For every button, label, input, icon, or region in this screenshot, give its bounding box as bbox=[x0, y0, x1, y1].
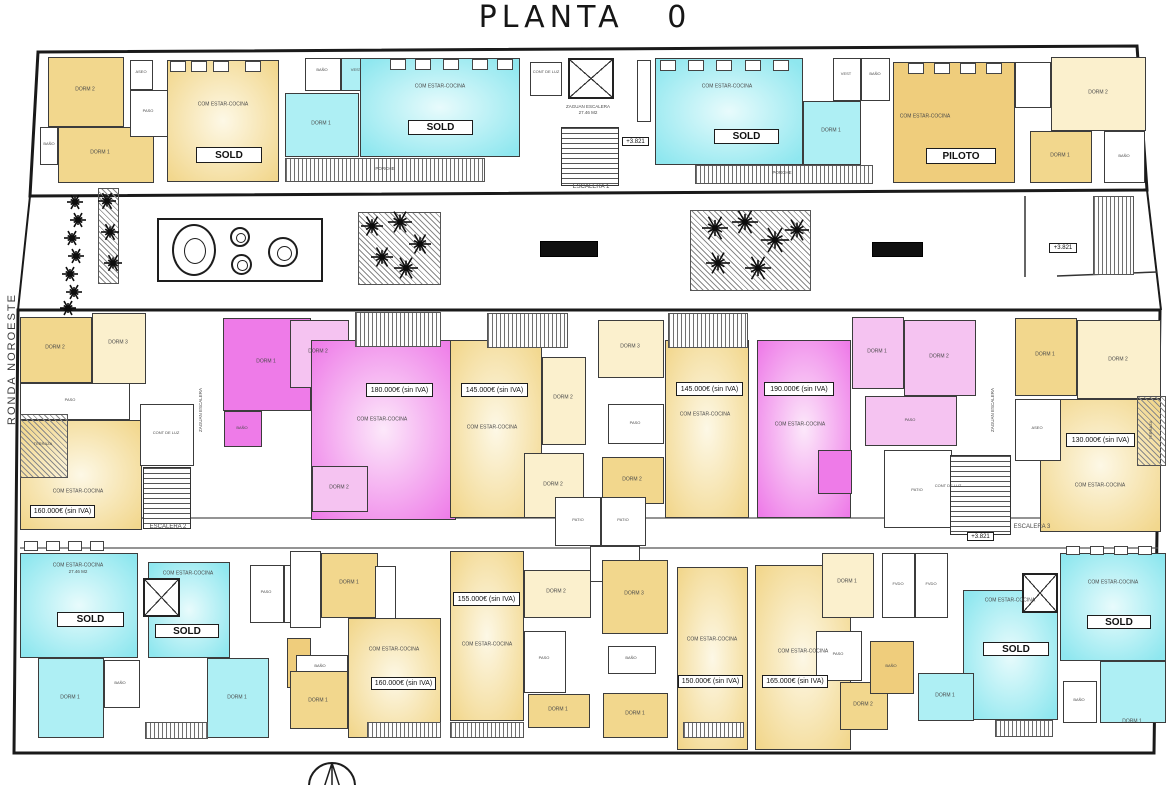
price-label: 180.000€ (sin IVA) bbox=[366, 383, 433, 397]
room-label: PASO bbox=[65, 398, 76, 402]
room bbox=[818, 450, 852, 494]
kitchen-fixture bbox=[472, 59, 488, 70]
play-equipment bbox=[231, 254, 252, 275]
room-label: PASO bbox=[905, 418, 916, 422]
kitchen-fixture bbox=[90, 541, 104, 551]
room bbox=[608, 646, 656, 674]
room bbox=[167, 60, 279, 182]
room-label: DORM 2 bbox=[1108, 358, 1127, 363]
street-label: RONDA NOROESTE bbox=[6, 293, 18, 425]
plan-title: PLANTA 0 bbox=[479, 0, 692, 35]
room-label: DORM 1 bbox=[339, 581, 358, 586]
kitchen-fixture bbox=[688, 60, 704, 71]
price-label: 190.000€ (sin IVA) bbox=[764, 382, 834, 396]
elevator-icon bbox=[568, 58, 614, 99]
kitchen-fixture bbox=[170, 61, 186, 72]
room-label: PATIO bbox=[572, 518, 583, 522]
room-label: COM ESTAR-COCINA bbox=[1075, 484, 1125, 489]
room-label: PASO bbox=[143, 109, 154, 113]
kitchen-fixture bbox=[497, 59, 513, 70]
room-label: BAÑO bbox=[236, 426, 247, 430]
room-label: PORCHE bbox=[375, 167, 394, 172]
room bbox=[1015, 399, 1061, 461]
bench bbox=[540, 241, 598, 257]
hatched-area bbox=[145, 722, 208, 739]
elevation-marker: +3.821 bbox=[967, 532, 994, 541]
room-label: ZAGUAN ESCALERA bbox=[199, 388, 204, 432]
hatched-area bbox=[1093, 196, 1134, 275]
room-label: BAÑO bbox=[314, 664, 325, 668]
room-label: DORM 2 bbox=[622, 478, 641, 483]
kitchen-fixture bbox=[191, 61, 207, 72]
room-label: PASO bbox=[261, 590, 272, 594]
room-label: COM ESTAR-COCINA bbox=[778, 650, 828, 655]
room bbox=[833, 58, 861, 101]
hatched-area bbox=[668, 313, 748, 348]
play-equipment bbox=[268, 237, 298, 267]
kitchen-fixture bbox=[716, 60, 732, 71]
plant-icon bbox=[706, 251, 730, 275]
room bbox=[250, 565, 284, 623]
room-label: DORM 2 bbox=[329, 486, 348, 491]
room-label: COM ESTAR-COCINA bbox=[702, 85, 752, 90]
north-arrow-icon bbox=[305, 760, 361, 785]
room-label: DORM 1 bbox=[625, 712, 644, 717]
room-label: COM ESTAR-COCINA bbox=[53, 564, 103, 569]
room-label: COM ESTAR-COCINA bbox=[369, 648, 419, 653]
stair-label: ESCALERA 1 bbox=[573, 184, 610, 190]
room-label: DORM 1 bbox=[548, 708, 567, 713]
hatched-area bbox=[487, 313, 568, 348]
staircase bbox=[143, 467, 191, 529]
room-label: 27.46 M2 bbox=[579, 111, 598, 116]
room-label: DORM 3 bbox=[620, 345, 639, 350]
kitchen-fixture bbox=[660, 60, 676, 71]
room-label: BAÑO bbox=[1118, 154, 1129, 158]
room-label: BAÑO bbox=[869, 72, 880, 76]
hatched-area bbox=[450, 722, 524, 738]
elevation-marker: +3.821 bbox=[622, 137, 649, 146]
room bbox=[1063, 681, 1097, 723]
room bbox=[40, 127, 58, 165]
room bbox=[290, 551, 321, 628]
room-label: DORM 1 bbox=[867, 350, 886, 355]
room-label: DORM 2 bbox=[45, 346, 64, 351]
room-label: CONT DE LUZ bbox=[533, 70, 560, 74]
room-label: COM ESTAR-COCINA bbox=[680, 413, 730, 418]
kitchen-fixture bbox=[390, 59, 406, 70]
room-label: DORM 2 bbox=[546, 590, 565, 595]
room-label: COM ESTAR-COCINA bbox=[163, 572, 213, 577]
room bbox=[665, 340, 749, 518]
room-label: COM ESTAR-COCINA bbox=[415, 85, 465, 90]
room-label: CONT DE LUZ bbox=[935, 484, 962, 488]
plant-icon bbox=[702, 215, 728, 241]
kitchen-fixture bbox=[46, 541, 60, 551]
room-label: DORM 2 bbox=[75, 88, 94, 93]
kitchen-fixture bbox=[773, 60, 789, 71]
room-label: TERRAZA bbox=[34, 442, 53, 446]
kitchen-fixture bbox=[745, 60, 761, 71]
stair-label: ESCALERA 3 bbox=[1014, 524, 1051, 530]
room-label: PASO bbox=[833, 652, 844, 656]
room-label: DORM 1 bbox=[821, 129, 840, 134]
hatched-area bbox=[355, 312, 441, 347]
kitchen-fixture bbox=[415, 59, 431, 70]
room bbox=[655, 58, 803, 165]
room-label: DORM 1 bbox=[60, 696, 79, 701]
room bbox=[92, 313, 146, 384]
hatched-area bbox=[367, 722, 441, 738]
room-label: COM ESTAR-COCINA bbox=[467, 426, 517, 431]
room-label: COM ESTAR-COCINA bbox=[900, 115, 950, 120]
play-equipment bbox=[230, 227, 250, 247]
room bbox=[602, 560, 668, 634]
sold-label: SOLD bbox=[408, 120, 473, 135]
kitchen-fixture bbox=[986, 63, 1002, 74]
room-label: BAÑO bbox=[43, 142, 54, 146]
plant-icon bbox=[745, 255, 771, 281]
room-label: FVDO bbox=[892, 582, 903, 586]
kitchen-fixture bbox=[960, 63, 976, 74]
room bbox=[321, 553, 378, 618]
room bbox=[542, 357, 586, 445]
room-label: BAÑO bbox=[316, 68, 327, 72]
room-label: BAÑO bbox=[1073, 698, 1084, 702]
room bbox=[1060, 553, 1166, 661]
kitchen-fixture bbox=[443, 59, 459, 70]
room-label: COM ESTAR-COCINA bbox=[357, 418, 407, 423]
room bbox=[360, 58, 520, 157]
plant-icon bbox=[409, 233, 431, 255]
room-label: DORM 1 bbox=[227, 696, 246, 701]
room-label: ZAGUAN ESCALERA bbox=[566, 105, 610, 110]
play-equipment bbox=[172, 224, 216, 276]
room-label: ASEO bbox=[135, 70, 146, 74]
tree-icon bbox=[67, 194, 83, 210]
room bbox=[305, 58, 341, 91]
room-label: DORM 1 bbox=[935, 694, 954, 699]
plant-icon bbox=[785, 218, 809, 242]
elevator-icon bbox=[143, 578, 180, 617]
price-label: 155.000€ (sin IVA) bbox=[453, 592, 520, 606]
room bbox=[893, 62, 1015, 183]
plant-icon bbox=[101, 223, 119, 241]
room-label: DORM 1 bbox=[1050, 154, 1069, 159]
room-label: COM ESTAR-COCINA bbox=[53, 490, 103, 495]
kitchen-fixture bbox=[934, 63, 950, 74]
room-label: COM ESTAR-COCINA bbox=[198, 103, 248, 108]
room-label: DORM 1 bbox=[311, 122, 330, 127]
sold-label: SOLD bbox=[57, 612, 124, 627]
tree-icon bbox=[60, 300, 76, 316]
room-label: DORM 1 bbox=[1122, 720, 1141, 725]
hatched-area bbox=[995, 720, 1053, 737]
plant-icon bbox=[371, 246, 393, 268]
room bbox=[861, 58, 890, 101]
room-label: DORM 2 bbox=[929, 355, 948, 360]
tree-icon bbox=[68, 248, 84, 264]
room bbox=[822, 553, 874, 618]
room bbox=[140, 404, 194, 466]
room-label: PASO bbox=[539, 656, 550, 660]
plant-icon bbox=[394, 256, 418, 280]
room-label: DORM 3 bbox=[108, 341, 127, 346]
room-label: DORM 1 bbox=[1035, 353, 1054, 358]
room-label: CONT DE LUZ bbox=[153, 431, 180, 435]
room-label: ZAGUAN ESCALERA bbox=[991, 388, 996, 432]
room-label: COM ESTAR-COCINA bbox=[462, 643, 512, 648]
room-label: COM ESTAR-COCINA bbox=[985, 599, 1035, 604]
stair-label: ESCALERA 2 bbox=[150, 524, 187, 530]
plant-icon bbox=[98, 192, 116, 210]
room-label: TERRAZA bbox=[1149, 421, 1153, 440]
kitchen-fixture bbox=[1114, 546, 1128, 555]
room bbox=[450, 551, 524, 721]
price-label: 130.000€ (sin IVA) bbox=[1066, 433, 1135, 447]
room-label: DORM 1 bbox=[837, 580, 856, 585]
room bbox=[816, 631, 862, 681]
hatched-area bbox=[683, 722, 744, 738]
room-label: DORM 1 bbox=[256, 360, 275, 365]
floor-plan: ESCALERA 1ESCALERA 2ESCALERA 3ZAGUAN ESC… bbox=[0, 0, 1170, 785]
tree-icon bbox=[66, 284, 82, 300]
kitchen-fixture bbox=[1090, 546, 1104, 555]
elevator-icon bbox=[1022, 573, 1058, 613]
room-label: DORM 1 bbox=[90, 151, 109, 156]
kitchen-fixture bbox=[908, 63, 924, 74]
kitchen-fixture bbox=[24, 541, 38, 551]
price-label: 145.000€ (sin IVA) bbox=[676, 382, 743, 396]
staircase bbox=[950, 455, 1011, 535]
plant-icon bbox=[104, 254, 122, 272]
room-label: 27.46 M2 bbox=[69, 570, 88, 575]
sold-label: SOLD bbox=[196, 147, 262, 163]
sold-label: SOLD bbox=[1087, 615, 1151, 629]
sold-label: SOLD bbox=[155, 624, 219, 638]
price-label: 150.000€ (sin IVA) bbox=[678, 675, 743, 688]
room-label: PATIO bbox=[617, 518, 628, 522]
sold-label: SOLD bbox=[714, 129, 779, 144]
room-label: PORCHE bbox=[772, 171, 791, 176]
room bbox=[130, 90, 168, 137]
room-label: PASO bbox=[630, 421, 641, 425]
price-label: 160.000€ (sin IVA) bbox=[30, 505, 95, 518]
elevation-marker: +3.821 bbox=[1049, 243, 1077, 253]
sold-label: SOLD bbox=[983, 642, 1049, 656]
room-label: PATIO bbox=[911, 488, 922, 492]
room bbox=[637, 60, 651, 122]
room-label: DORM 2 bbox=[543, 483, 562, 488]
room bbox=[1100, 661, 1166, 723]
tree-icon bbox=[70, 212, 86, 228]
hatched-area bbox=[20, 414, 68, 478]
kitchen-fixture bbox=[1138, 546, 1152, 555]
room-label: BAÑO bbox=[625, 656, 636, 660]
room-label: COM ESTAR-COCINA bbox=[1088, 581, 1138, 586]
plant-icon bbox=[361, 215, 383, 237]
plant-icon bbox=[732, 209, 758, 235]
room-label: DORM 1 bbox=[308, 699, 327, 704]
room-label: COM ESTAR-COCINA bbox=[775, 423, 825, 428]
room-label: COM ESTAR-COCINA bbox=[687, 638, 737, 643]
room-label: BAÑO bbox=[114, 681, 125, 685]
tree-icon bbox=[62, 266, 78, 282]
tree-icon bbox=[64, 230, 80, 246]
kitchen-fixture bbox=[1066, 546, 1080, 555]
room bbox=[130, 60, 153, 90]
staircase bbox=[561, 127, 619, 186]
room-label: VEST bbox=[841, 72, 851, 76]
room bbox=[530, 62, 562, 96]
kitchen-fixture bbox=[245, 61, 261, 72]
price-label: 165.000€ (sin IVA) bbox=[762, 675, 828, 688]
room-label: DORM 3 bbox=[624, 592, 643, 597]
room-label: DORM 2 bbox=[853, 703, 872, 708]
kitchen-fixture bbox=[213, 61, 229, 72]
room-label: VEST bbox=[351, 68, 361, 72]
price-label: 160.000€ (sin IVA) bbox=[371, 677, 436, 690]
room-label: DORM 2 bbox=[308, 350, 327, 355]
room-label: DORM 2 bbox=[553, 396, 572, 401]
room-label: FVDO bbox=[925, 582, 936, 586]
piloto-label: PILOTO bbox=[926, 148, 996, 164]
room-label: ASEO bbox=[1031, 426, 1042, 430]
bench bbox=[872, 242, 923, 257]
room-label: BAÑO bbox=[885, 664, 896, 668]
room bbox=[1015, 62, 1051, 108]
room-label: DORM 2 bbox=[1088, 91, 1107, 96]
plant-icon bbox=[388, 210, 412, 234]
price-label: 145.000€ (sin IVA) bbox=[461, 383, 528, 397]
room bbox=[524, 631, 566, 693]
kitchen-fixture bbox=[68, 541, 82, 551]
